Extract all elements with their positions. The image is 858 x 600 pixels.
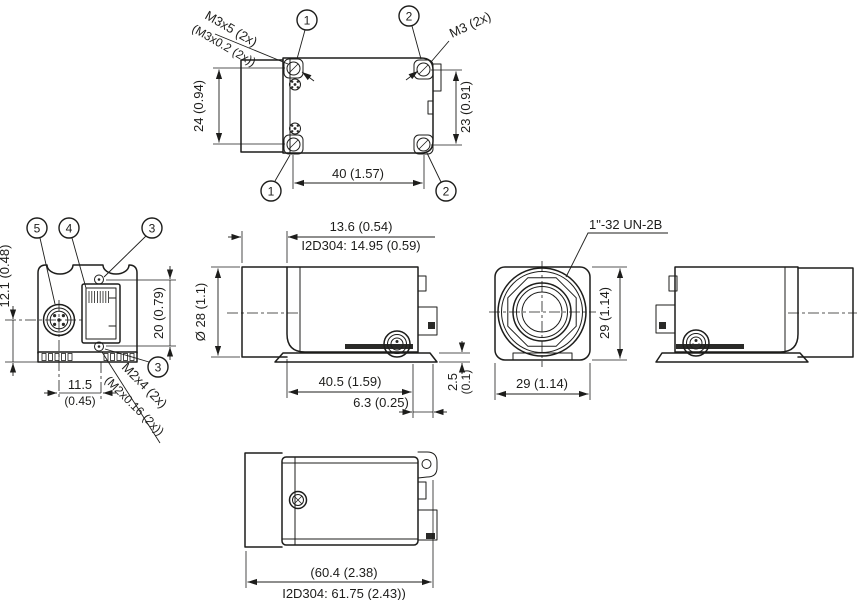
rear-slot — [418, 482, 426, 499]
drawing-canvas: 24 (0.94) 23 (0.91) 40 (1.57) M3x5 (2x) … — [0, 0, 858, 600]
dim-width: 29 (1.14) — [516, 376, 568, 391]
mounting-plate — [275, 353, 437, 362]
dimensional-drawing: 24 (0.94) 23 (0.91) 40 (1.57) M3x5 (2x) … — [0, 0, 858, 600]
dim-front-variant: I2D304: 14.95 (0.59) — [301, 238, 420, 253]
dim-length-line2: I2D304: 61.75 (2.43)) — [282, 586, 406, 600]
dim-offset-in: (0.45) — [64, 394, 95, 408]
rear-slot — [418, 276, 426, 291]
dim-length-line1: (60.4 (2.38) — [310, 565, 377, 580]
housing-outline — [283, 58, 433, 153]
lens-barrel-outline — [798, 268, 853, 357]
side-view: 13.6 (0.54) I2D304: 14.95 (0.59) Ø 28 (1… — [193, 219, 473, 418]
dim-connector-height: 12.1 (0.48) — [0, 245, 12, 308]
dim-top-width: 40 (1.57) — [332, 166, 384, 181]
dim-body-length: 40.5 (1.59) — [319, 374, 382, 389]
svg-text:3: 3 — [155, 361, 162, 375]
side-view-dimensions: 13.6 (0.54) I2D304: 14.95 (0.59) Ø 28 (1… — [193, 219, 473, 418]
housing-screws — [284, 59, 433, 154]
mounting-plate — [656, 353, 808, 362]
rj45-port — [82, 275, 120, 351]
bottom-view: (60.4 (2.38) I2D304: 61.75 (2.43)) — [245, 452, 437, 600]
front-view: 29 (1.14) 29 (1.14) 1"-32 UN-2B — [489, 217, 668, 400]
rj45-latch — [109, 298, 116, 326]
svg-text:4: 4 — [66, 222, 73, 236]
mount-tab — [418, 452, 437, 478]
bottom-view-dimensions: (60.4 (2.38) I2D304: 61.75 (2.43)) — [246, 480, 433, 600]
lens-barrel-outline — [241, 60, 283, 152]
dim-plate-in: (0.1) — [459, 370, 473, 395]
dim-top-left: 24 (0.94) — [191, 80, 206, 132]
dim-screw-spacing: 20 (0.79) — [151, 287, 166, 339]
dim-top-right: 23 (0.91) — [458, 81, 473, 133]
m12-connector-side — [683, 330, 709, 356]
housing-outline — [287, 267, 418, 352]
torx-screws — [290, 79, 301, 134]
front-view-dimensions: 29 (1.14) 29 (1.14) 1"-32 UN-2B — [495, 217, 668, 400]
svg-text:1: 1 — [304, 14, 311, 28]
dim-offset-mm: 11.5 — [68, 377, 92, 392]
dim-height: 29 (1.14) — [597, 287, 612, 339]
housing-outline — [675, 267, 798, 352]
svg-text:5: 5 — [34, 222, 41, 236]
label-lens-thread: 1"-32 UN-2B — [589, 217, 662, 232]
dim-front: 13.6 (0.54) — [330, 219, 393, 234]
lens-barrel-outline — [242, 267, 287, 357]
plate-ribs — [42, 354, 134, 361]
label-m3: M3 (2x) — [447, 9, 493, 41]
top-view: 24 (0.94) 23 (0.91) 40 (1.57) M3x5 (2x) … — [190, 6, 494, 201]
housing-outline — [282, 457, 418, 545]
svg-text:3: 3 — [149, 222, 156, 236]
svg-text:1: 1 — [268, 185, 275, 199]
dim-plate-mm: 2.5 — [445, 373, 460, 391]
rear-slot — [669, 276, 677, 291]
top-view-dimensions: 24 (0.94) 23 (0.91) 40 (1.57) — [191, 68, 473, 189]
svg-text:2: 2 — [406, 10, 413, 24]
rear-view: 12.1 (0.48) 20 (0.79) 11.5 (0.45) 5 4 3 — [0, 218, 176, 443]
lens-barrel-outline — [245, 453, 282, 547]
dim-rear: 6.3 (0.25) — [353, 395, 409, 410]
mount-tab — [433, 64, 441, 91]
tab-hole — [422, 460, 431, 469]
housing-outline — [38, 265, 137, 353]
svg-text:2: 2 — [443, 185, 450, 199]
dim-diameter: Ø 28 (1.1) — [193, 283, 208, 342]
right-side-view — [656, 267, 857, 362]
bottom-screw — [290, 492, 307, 509]
rj45-bump — [418, 307, 437, 335]
